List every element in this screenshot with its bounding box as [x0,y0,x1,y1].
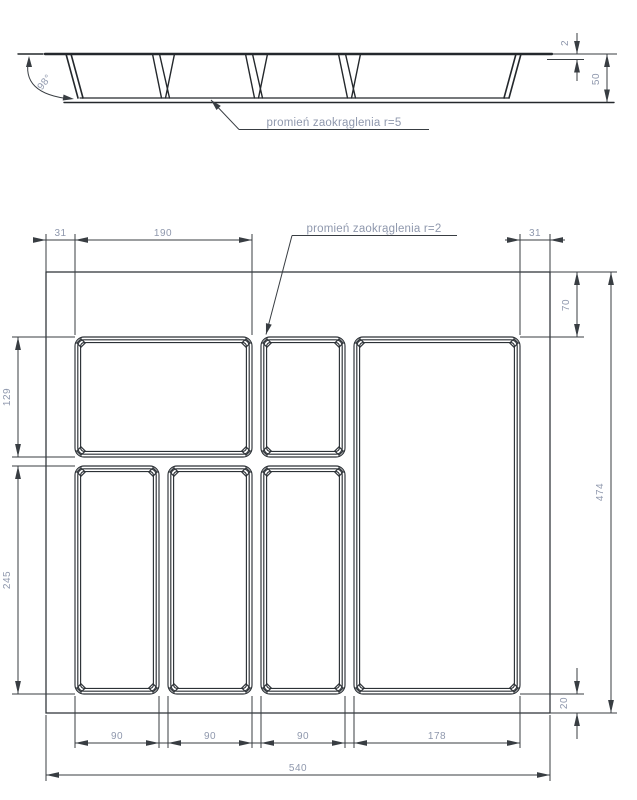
dim-label-col2: 90 [204,731,216,742]
dim-label-total-width: 540 [289,763,307,774]
dim-top-width: 190 [75,228,252,240]
leader-radius-r2: promień zaokrąglenia r=2 [263,223,457,335]
dim-label-row2-height: 245 [2,571,13,589]
dim-rim-thickness: 2 [560,33,577,81]
dim-label-top-width: 190 [154,228,172,239]
dim-total-height: 474 [595,272,611,713]
dim-label-col4: 178 [428,731,446,742]
dim-label-margin-left: 31 [54,228,66,239]
dim-col4-width: 178 [354,731,520,743]
compartment [354,337,520,694]
compartment [75,466,159,694]
radius-note-r2: promień zaokrąglenia r=2 [307,223,442,235]
dim-col2-width: 90 [168,731,252,743]
compartment [75,337,252,457]
radius-note-r5: promień zaokrąglenia r=5 [267,117,402,129]
compartment [261,337,345,457]
divider-wall-1 [153,54,175,98]
dim-row1-height: 129 [2,337,18,457]
dim-label-rim-thickness: 2 [560,40,571,46]
dim-label-top-offset: 70 [561,299,572,311]
angle-arrow-top [26,56,32,67]
dim-col3-width: 90 [261,731,345,743]
angle-arrow-bottom [63,94,75,101]
compartments [75,337,520,694]
divider-wall-3 [339,54,361,98]
divider-wall-2 [246,54,268,98]
cutlery-tray-technical-drawing: 98° 2 50 promień zaokrąglenia r=5 [0,0,637,800]
dim-label-row1-height: 129 [2,388,13,406]
dim-section-height: 50 [591,54,607,103]
dim-right-top-offset: 70 [561,272,577,337]
compartment [261,466,345,694]
dim-label-col3: 90 [297,731,309,742]
section-view: 98° 2 50 promień zaokrąglenia r=5 [18,33,617,130]
dim-angle-98: 98° [26,56,74,102]
dim-label-total-height: 474 [595,483,606,501]
tray-outline [46,272,550,713]
dim-top-margin-right: 31 [505,228,565,240]
drawing-svg: 98° 2 50 promień zaokrąglenia r=5 [0,0,637,800]
dim-total-width: 540 [46,763,550,775]
dim-row2-height: 245 [2,466,18,694]
dim-right-bottom-offset: 20 [559,668,577,739]
compartment [168,466,252,694]
dim-label-section-height: 50 [591,73,602,85]
dim-label-margin-right: 31 [529,228,541,239]
dim-col1-width: 90 [75,731,159,743]
dim-top-margin-left: 31 [33,228,75,240]
dim-label-col1: 90 [111,731,123,742]
dim-label-bottom-offset: 20 [559,697,570,709]
plan-view: 31 190 promień zaokrąglenia r=2 31 [2,223,617,781]
